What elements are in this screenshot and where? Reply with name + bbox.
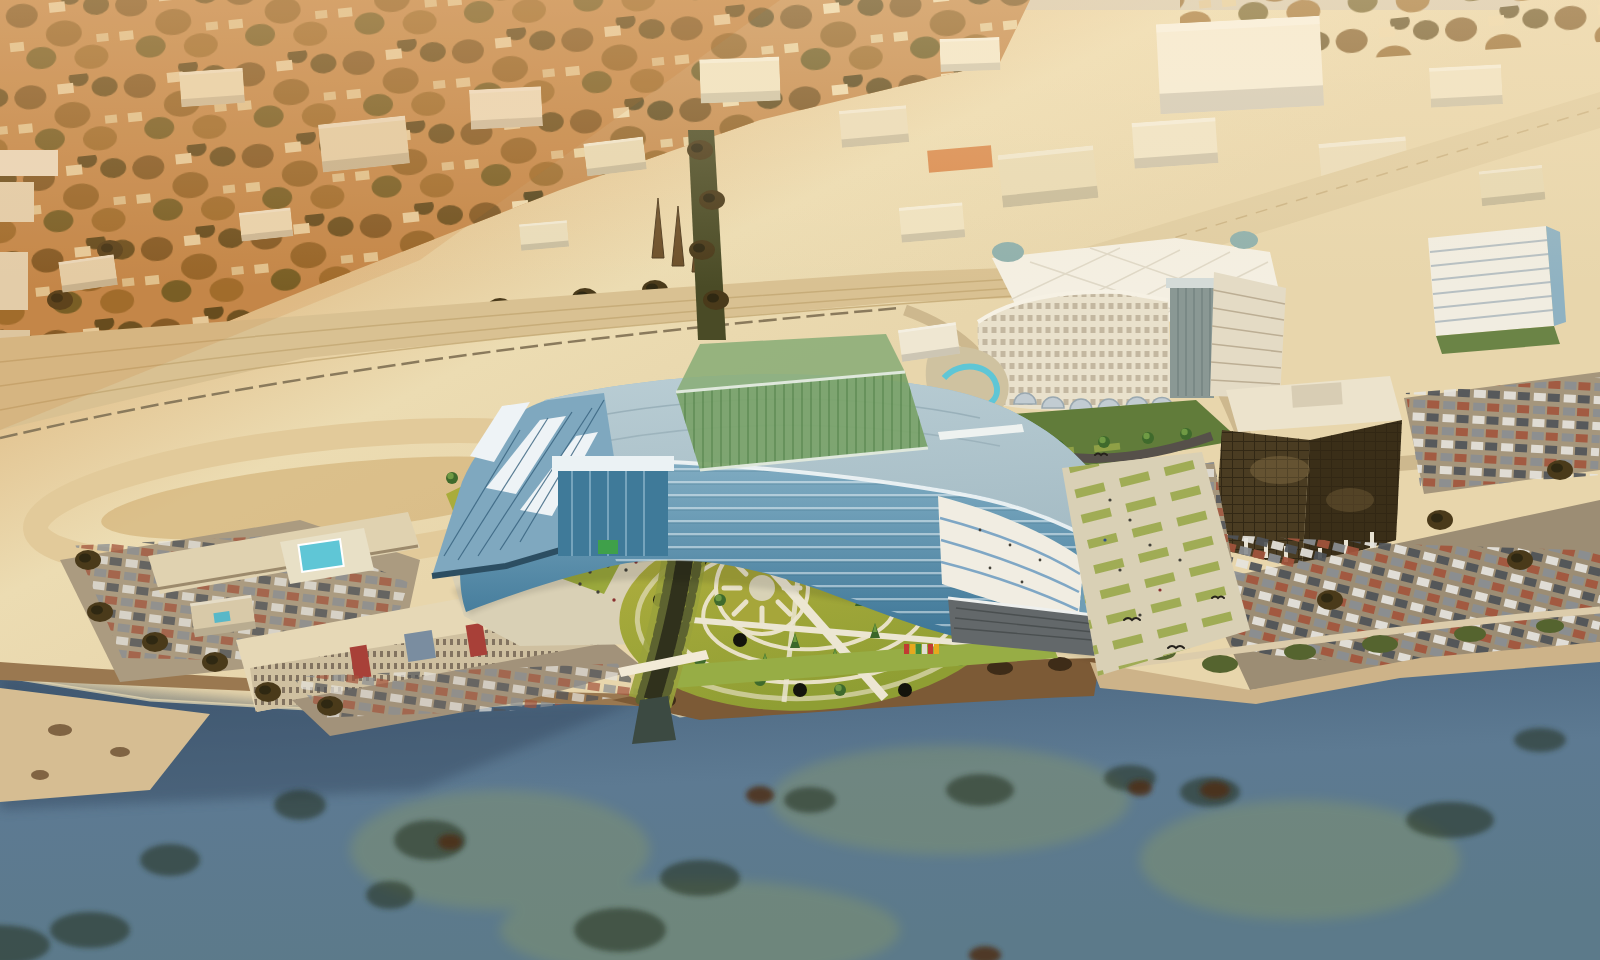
- aerial-rendering: [0, 0, 1600, 960]
- scene-canvas: [0, 0, 1600, 960]
